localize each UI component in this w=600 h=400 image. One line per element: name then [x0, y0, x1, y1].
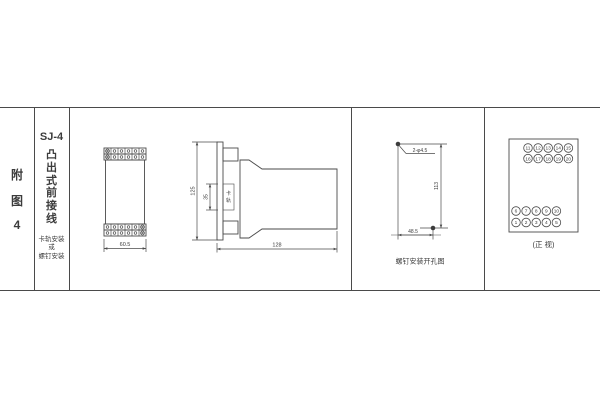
terminal-number: 15 — [566, 146, 572, 152]
title-char: 凸 — [46, 149, 57, 162]
mounting-hole — [396, 142, 401, 147]
wire-hole-icon — [113, 156, 116, 159]
mounting-note: 卡轨安装 或 螺钉安装 — [39, 236, 65, 262]
terminal-number: 13 — [546, 146, 552, 152]
vertical-dimension: 113 — [434, 182, 440, 190]
wire-hole-icon — [127, 232, 130, 235]
rail-label-char: 卡 — [226, 190, 231, 197]
terminal-number: 7 — [525, 209, 528, 215]
wire-hole-icon — [127, 156, 130, 159]
spec-column: SJ-4 凸 出 式 前 接 线 卡轨安装 或 螺钉安装 — [34, 107, 69, 290]
wire-hole-icon — [113, 232, 116, 235]
figure-char: 4 — [14, 218, 21, 232]
terminal-face-outline — [509, 139, 578, 232]
terminal-number: 1 — [515, 220, 518, 226]
wire-hole-icon — [113, 226, 116, 229]
title-char: 线 — [46, 213, 57, 226]
title-vertical: 凸 出 式 前 接 线 — [46, 149, 57, 226]
terminal-number: 5 — [555, 220, 558, 226]
wire-hole-icon — [120, 226, 123, 229]
wire-hole-icon — [141, 156, 144, 159]
top-step — [223, 148, 238, 161]
terminal-number: 17 — [535, 156, 541, 162]
drawing-sheet: 附 图 4 SJ-4 凸 出 式 前 接 线 卡轨安装 或 螺钉安装 — [0, 0, 600, 400]
terminal-number: 12 — [535, 146, 541, 152]
figure-char: 附 — [11, 166, 23, 183]
terminal-number: 2 — [525, 220, 528, 226]
title-char: 出 — [46, 162, 57, 175]
wire-hole-icon — [134, 226, 137, 229]
figure-char: 图 — [11, 192, 23, 209]
wire-hole-icon — [120, 232, 123, 235]
column-divider — [69, 107, 70, 290]
wire-hole-icon — [134, 156, 137, 159]
mounting-note-line: 卡轨安装 — [39, 236, 65, 245]
bottom-step — [223, 221, 238, 234]
mounting-note-line: 或 — [39, 244, 65, 253]
terminal-grid — [106, 148, 145, 236]
wire-hole-icon — [127, 150, 130, 153]
title-char: 式 — [46, 175, 57, 188]
side-view-drawing: 125 35 卡 轨 128 — [183, 128, 355, 260]
front-flange — [217, 142, 223, 240]
terminal-number: 9 — [545, 209, 548, 215]
terminal-number: 19 — [556, 156, 562, 162]
drill-hole-diagram: 2-φ4.5 113 48.5 螺钉安装开孔图 — [358, 128, 488, 273]
terminal-number: 11 — [526, 146, 531, 152]
rail-slot — [223, 184, 234, 210]
drill-diagram-caption: 螺钉安装开孔图 — [396, 257, 445, 266]
terminal-rows: 1112131415161718192067891012345 — [512, 144, 573, 227]
terminal-number: 20 — [566, 156, 572, 162]
wire-hole-icon — [120, 156, 123, 159]
rail-label-char: 轨 — [226, 197, 231, 204]
terminal-face-view-drawing: 1112131415161718192067891012345 (正 视) — [493, 128, 600, 260]
wire-hole-icon — [127, 226, 130, 229]
mounting-hole — [431, 226, 436, 231]
terminal-number: 4 — [545, 220, 548, 226]
relay-case-profile — [240, 160, 337, 238]
wire-hole-icon — [106, 232, 109, 235]
wire-hole-icon — [113, 150, 116, 153]
depth-dimension: 128 — [272, 243, 281, 249]
terminal-number: 6 — [515, 209, 518, 215]
wire-hole-icon — [106, 226, 109, 229]
horizontal-dimension: 48.5 — [408, 229, 418, 235]
terminal-number: 14 — [556, 146, 562, 152]
sheet-bottom-rule — [0, 290, 600, 291]
mounting-note-line: 螺钉安装 — [39, 253, 65, 262]
rail-slot-dimension: 35 — [204, 194, 210, 200]
terminal-number: 8 — [535, 209, 538, 215]
front-view-caption: (正 视) — [532, 239, 555, 249]
sheet-top-rule — [0, 107, 600, 108]
title-char: 前 — [46, 187, 57, 200]
wire-hole-icon — [120, 150, 123, 153]
title-char: 接 — [46, 200, 57, 213]
figure-number-label: 附 图 4 — [0, 107, 34, 290]
terminal-number: 18 — [546, 156, 552, 162]
outline-front-view-drawing: 60.5 — [88, 133, 173, 258]
wire-hole-icon — [134, 232, 137, 235]
hole-spec-label: 2-φ4.5 — [413, 148, 428, 154]
relay-body — [106, 160, 145, 224]
terminal-number: 10 — [554, 209, 560, 215]
model-label: SJ-4 — [40, 131, 63, 143]
terminal-number: 3 — [535, 220, 538, 226]
wire-hole-icon — [134, 150, 137, 153]
terminal-number: 16 — [525, 156, 531, 162]
width-dimension: 60.5 — [120, 242, 131, 248]
wire-hole-icon — [141, 150, 144, 153]
height-dimension: 125 — [191, 186, 197, 195]
